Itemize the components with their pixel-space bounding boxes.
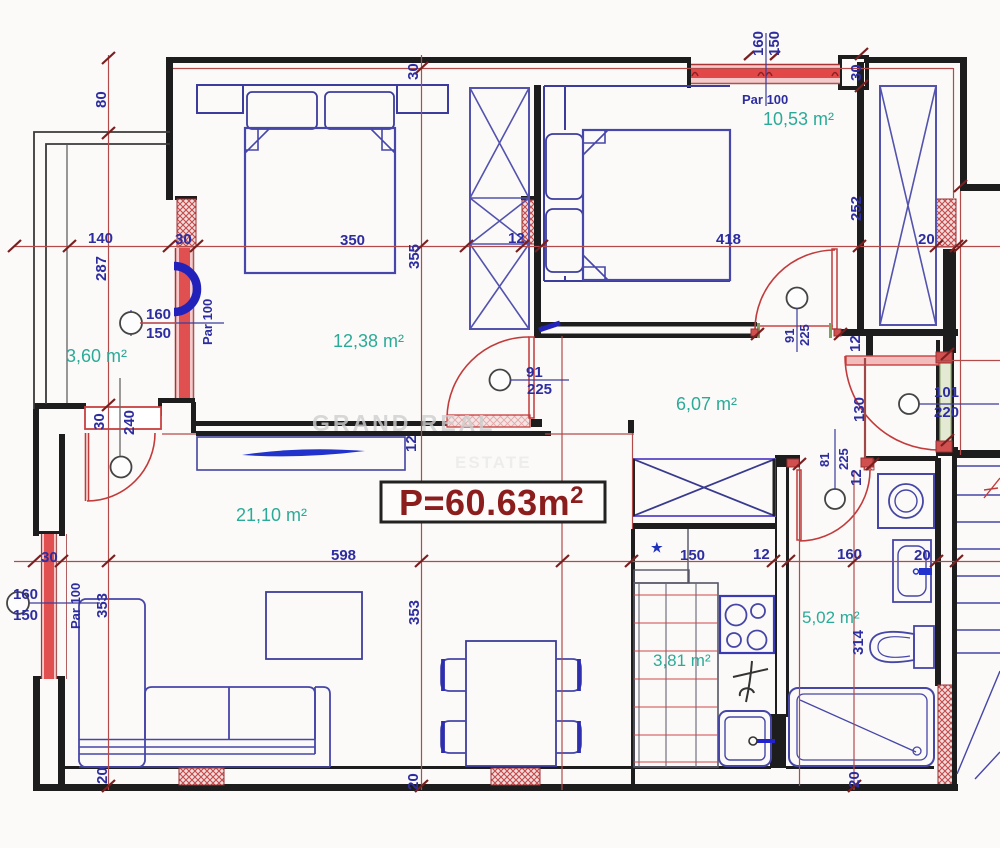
svg-text:12: 12	[847, 335, 864, 352]
svg-text:20: 20	[914, 547, 931, 564]
svg-text:240: 240	[121, 410, 138, 435]
svg-text:12: 12	[403, 435, 420, 452]
svg-text:160: 160	[146, 306, 171, 323]
svg-text:91: 91	[526, 364, 543, 381]
svg-text:12: 12	[753, 546, 770, 563]
svg-text:30: 30	[41, 549, 58, 566]
svg-text:P=60.63m2: P=60.63m2	[399, 482, 584, 523]
svg-text:225: 225	[836, 448, 851, 470]
svg-text:12: 12	[848, 469, 865, 486]
svg-text:20: 20	[405, 773, 422, 790]
svg-text:350: 350	[340, 232, 365, 249]
svg-text:220: 220	[934, 404, 959, 421]
svg-text:225: 225	[527, 381, 552, 398]
svg-text:355: 355	[406, 244, 423, 269]
svg-text:30: 30	[405, 63, 422, 80]
svg-text:5,02 m²: 5,02 m²	[802, 608, 860, 627]
svg-text:20: 20	[94, 767, 111, 784]
svg-text:252: 252	[848, 196, 865, 221]
svg-text:150: 150	[680, 547, 705, 564]
svg-text:160: 160	[837, 546, 862, 563]
svg-text:Par 100: Par 100	[742, 92, 788, 107]
svg-text:314: 314	[850, 629, 867, 655]
svg-text:30: 30	[175, 231, 192, 248]
svg-text:20: 20	[846, 771, 863, 788]
svg-text:21,10 m²: 21,10 m²	[236, 505, 307, 525]
svg-text:225: 225	[797, 324, 812, 346]
svg-text:140: 140	[88, 230, 113, 247]
svg-text:353: 353	[406, 600, 423, 625]
svg-text:150: 150	[146, 325, 171, 342]
svg-text:80: 80	[93, 91, 110, 108]
svg-text:6,07 m²: 6,07 m²	[676, 394, 737, 414]
svg-text:287: 287	[93, 256, 110, 281]
svg-text:101: 101	[934, 384, 959, 401]
svg-text:20: 20	[918, 231, 935, 248]
svg-text:Par 100: Par 100	[68, 583, 83, 629]
svg-text:160: 160	[750, 31, 767, 56]
svg-text:150: 150	[13, 607, 38, 624]
svg-text:598: 598	[331, 547, 356, 564]
svg-text:12: 12	[508, 230, 525, 247]
svg-text:Par 100: Par 100	[200, 299, 215, 345]
svg-text:160: 160	[13, 586, 38, 603]
svg-text:ESTATE: ESTATE	[455, 453, 532, 472]
svg-text:GRAND REAL: GRAND REAL	[312, 410, 495, 436]
svg-text:★: ★	[651, 540, 663, 555]
svg-text:91: 91	[782, 329, 797, 343]
svg-text:3,60 m²: 3,60 m²	[66, 346, 127, 366]
svg-text:353: 353	[94, 593, 111, 618]
svg-text:418: 418	[716, 231, 741, 248]
svg-text:12,38 m²: 12,38 m²	[333, 331, 404, 351]
svg-text:10,53 m²: 10,53 m²	[763, 109, 834, 129]
svg-text:130: 130	[851, 397, 868, 422]
svg-text:30: 30	[848, 64, 865, 81]
svg-text:150: 150	[766, 31, 783, 56]
svg-text:81: 81	[817, 453, 832, 467]
svg-text:30: 30	[91, 413, 108, 430]
svg-text:3,81 m²: 3,81 m²	[653, 651, 711, 670]
